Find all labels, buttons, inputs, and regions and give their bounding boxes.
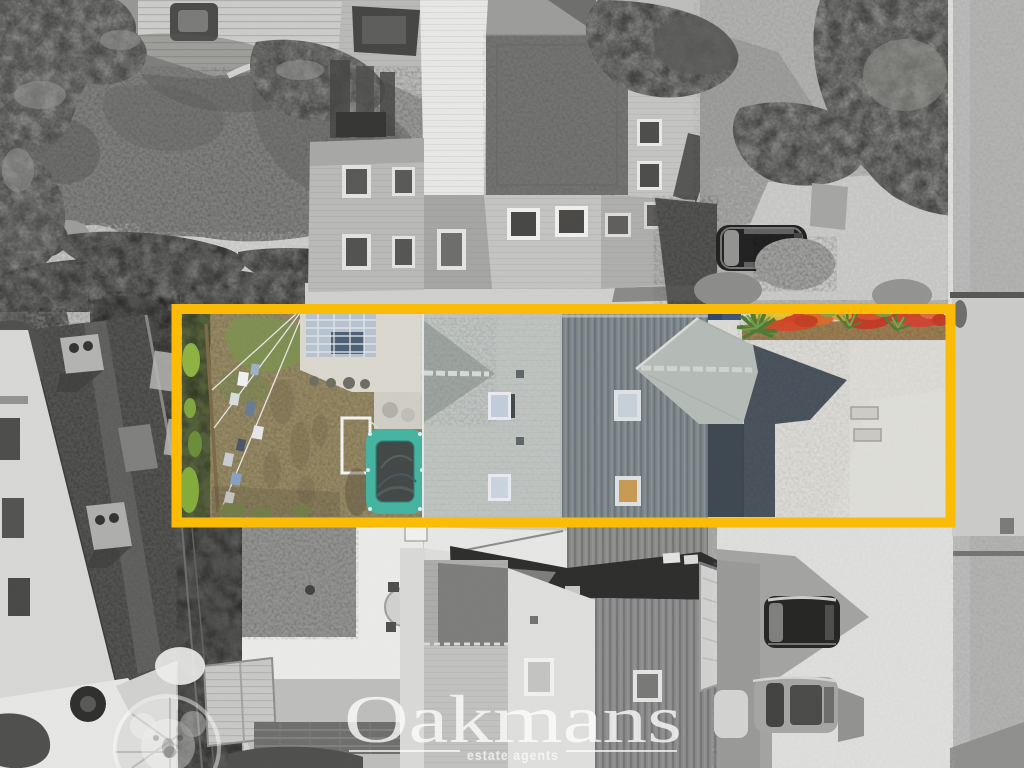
svg-text:Oakmans: Oakmans [344, 681, 682, 757]
svg-text:estate agents: estate agents [467, 748, 559, 763]
